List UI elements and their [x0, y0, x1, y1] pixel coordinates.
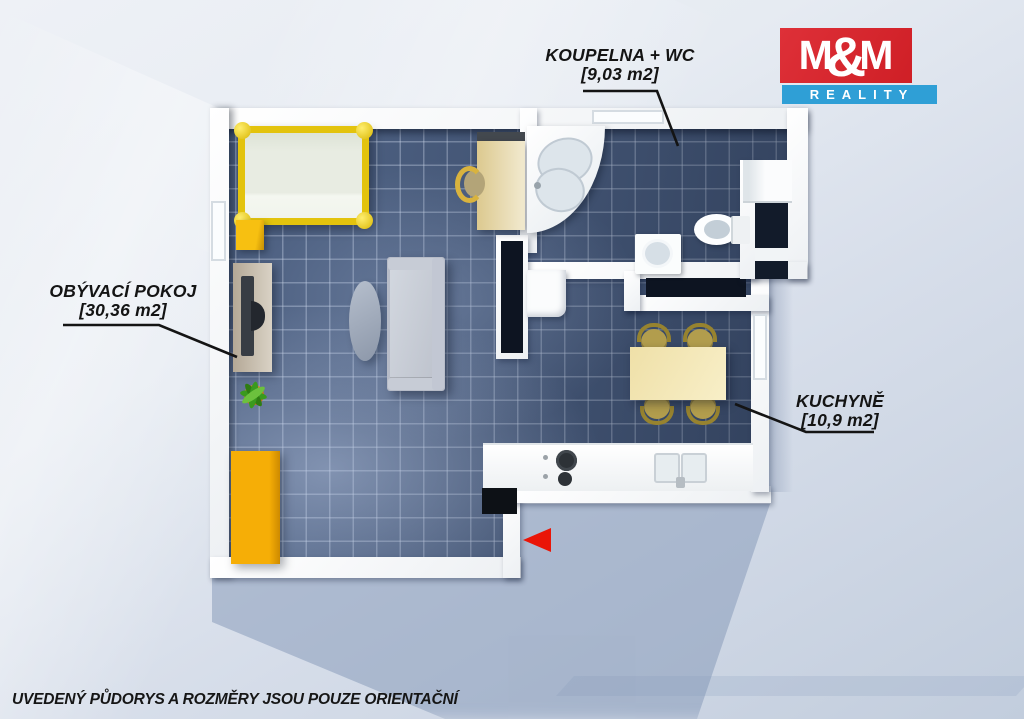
window-top-bathroom: [592, 110, 664, 124]
hall-closet-interior: [501, 241, 523, 353]
wall-kitchen-top: [624, 295, 769, 311]
bedpost-icon: [356, 122, 373, 139]
bathroom-sink-bowl: [642, 239, 673, 268]
label-bathroom: KOUPELNA + WC [9,03 m2]: [505, 46, 735, 84]
stove-burner-icon: [558, 472, 572, 486]
washing-machine: [743, 160, 792, 203]
toilet-tank: [731, 216, 750, 244]
label-bathroom-area: [9,03 m2]: [505, 65, 735, 84]
label-living-room: OBÝVACÍ POKOJ [30,36 m2]: [25, 282, 221, 320]
mm-reality-logo-banner: REALITY: [782, 85, 937, 104]
wardrobe: [231, 451, 280, 564]
bathtub-faucet-icon: [534, 182, 541, 189]
logo-ampersand: &: [826, 29, 866, 84]
bedpost-icon: [356, 212, 373, 229]
wall-left: [210, 108, 229, 578]
bathroom-shelf: [755, 248, 788, 261]
window-right-kitchen: [753, 314, 767, 380]
window-left-living: [211, 201, 226, 261]
desk-shelf: [477, 132, 525, 141]
label-living-room-area: [30,36 m2]: [25, 301, 221, 320]
bed: [238, 126, 369, 225]
label-living-room-name: OBÝVACÍ POKOJ: [25, 282, 221, 301]
coffee-table: [349, 281, 381, 361]
label-kitchen: KUCHYNĚ [10,9 m2]: [756, 392, 924, 430]
wall-niche-opening: [646, 278, 746, 297]
label-bathroom-name: KOUPELNA + WC: [505, 46, 735, 65]
dining-table: [630, 347, 726, 400]
sofa-seat: [390, 270, 432, 378]
desk-chair-back: [455, 166, 484, 203]
sofa: [387, 257, 445, 391]
kitchen-faucet-icon: [676, 477, 685, 488]
label-kitchen-area: [10,9 m2]: [756, 411, 924, 430]
hall-cabinet: [527, 270, 566, 317]
disclaimer-text: UVEDENÝ PŮDORYS A ROZMĚRY JSOU POUZE ORI…: [12, 691, 458, 709]
stove-knob-icon: [543, 474, 548, 479]
kitchen-counter: [483, 443, 753, 491]
stove-burner-icon: [556, 450, 577, 471]
toilet-bowl-inner: [704, 220, 730, 239]
entrance-arrow-icon: [523, 528, 551, 552]
bathroom-shelf-niche: [755, 200, 788, 279]
bedpost-icon: [234, 122, 251, 139]
wall-right-kitchen-shadow: [769, 279, 793, 492]
stove-knob-icon: [543, 455, 548, 460]
floorplan-canvas: KOUPELNA + WC [9,03 m2] OBÝVACÍ POKOJ [3…: [0, 0, 1024, 719]
label-kitchen-name: KUCHYNĚ: [756, 392, 924, 411]
nightstand: [236, 220, 264, 250]
mm-reality-logo: M&M: [780, 28, 912, 83]
entrance-doorway: [482, 488, 517, 514]
sofa-backrest: [432, 258, 444, 390]
wall-kitchen-top-stub: [624, 271, 640, 311]
